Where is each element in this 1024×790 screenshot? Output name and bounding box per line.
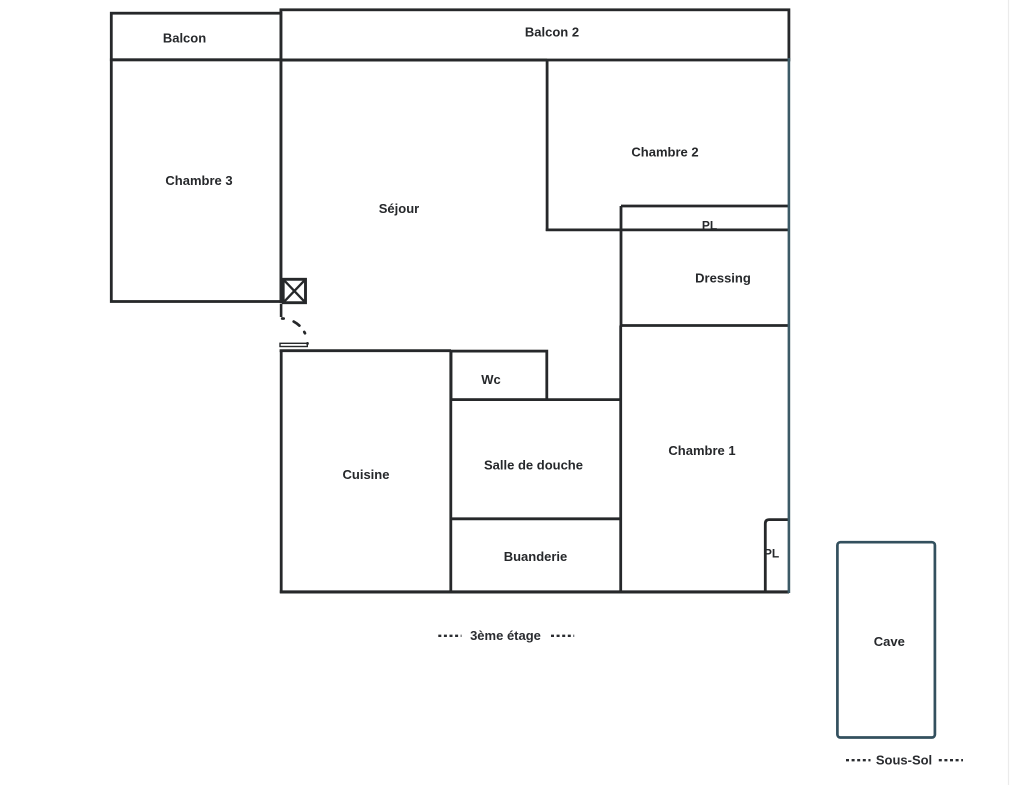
svg-text:Dressing: Dressing — [695, 271, 751, 286]
svg-text:Wc: Wc — [481, 372, 501, 387]
svg-text:Chambre 2: Chambre 2 — [631, 145, 698, 160]
svg-text:Chambre 3: Chambre 3 — [165, 173, 232, 188]
svg-text:Séjour: Séjour — [379, 201, 419, 216]
svg-text:Balcon 2: Balcon 2 — [525, 25, 579, 40]
svg-text:PL: PL — [764, 547, 779, 561]
svg-text:Sous-Sol: Sous-Sol — [876, 753, 932, 768]
svg-text:Buanderie: Buanderie — [504, 549, 568, 564]
svg-text:Cave: Cave — [874, 634, 905, 649]
svg-text:Balcon: Balcon — [163, 30, 206, 45]
svg-text:Chambre 1: Chambre 1 — [668, 443, 735, 458]
svg-text:Salle de douche: Salle de douche — [484, 458, 583, 473]
svg-text:PL: PL — [702, 219, 717, 233]
svg-text:Cuisine: Cuisine — [343, 467, 390, 482]
svg-text:3ème étage: 3ème étage — [470, 628, 541, 643]
